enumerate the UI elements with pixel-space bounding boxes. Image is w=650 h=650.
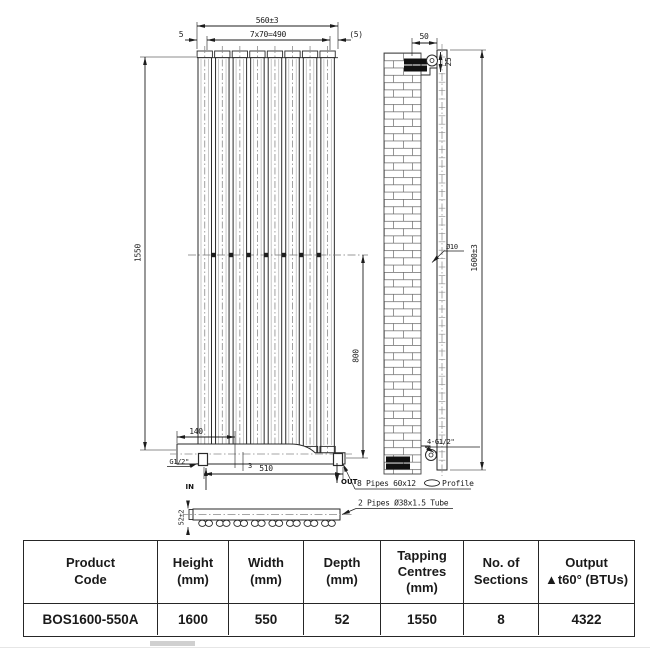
header-height: Height (mm) <box>158 541 229 604</box>
dim-depth: 52±2 <box>178 501 189 534</box>
pipe-oval <box>328 520 335 526</box>
value-tapping-centres: 1550 <box>381 604 464 635</box>
top-bolt-1 <box>404 59 427 65</box>
header-sections: No. of Sections <box>464 541 539 604</box>
dim-overall-height: 1600±3 <box>450 50 486 470</box>
flow-out: OUT <box>337 463 358 486</box>
flow-in: IN <box>186 468 206 491</box>
value-product-code: BOS1600-550A <box>24 604 158 635</box>
flow-out-label: OUT <box>341 478 358 486</box>
bottom-bolt-1 <box>386 457 410 463</box>
wall-section <box>384 53 421 474</box>
bottom-bracket-knob <box>426 450 437 461</box>
top-bolt-2 <box>404 66 427 72</box>
pipe-oval <box>276 520 283 526</box>
gridline-ghost <box>150 641 195 646</box>
dim-depth-label: 52±2 <box>178 510 186 526</box>
pipe-oval <box>240 520 247 526</box>
gridline-ghost <box>0 647 650 648</box>
pipe-oval <box>258 520 265 526</box>
dim-bottom-centres: 510 <box>204 464 343 479</box>
section-nipple <box>282 253 286 257</box>
header-product-code: Product Code <box>24 541 158 604</box>
dim-overall-height-label: 1600±3 <box>470 244 479 272</box>
dim-sections-label: 7x70=490 <box>250 30 287 39</box>
pipe-oval <box>205 520 212 526</box>
dim-overall-width-label: 560±3 <box>256 16 279 25</box>
top-bracket-knob <box>427 55 438 66</box>
plan-ovals <box>199 520 336 526</box>
header-output: Output ▲t60° (BTUs) <box>539 541 634 604</box>
value-output: 4322 <box>539 604 634 635</box>
dim-left-offset-label: 5 <box>179 30 184 39</box>
value-height: 1600 <box>158 604 229 635</box>
value-depth: 52 <box>304 604 381 635</box>
pipe-oval <box>199 520 206 526</box>
dim-top-offset-label: 25 <box>444 57 453 67</box>
header-tapping-centres: Tapping Centres (mm) <box>381 541 464 604</box>
side-view: 50 25 Ø10 1600±3 4-G1/2" <box>384 32 486 476</box>
dim-gap-label: 3 <box>248 462 252 470</box>
pipe-oval <box>322 520 329 526</box>
value-width: 550 <box>229 604 304 635</box>
oval-profile-icon <box>425 480 440 486</box>
connections-callout-label: 4-G1/2" <box>427 438 454 446</box>
outlet-fitting <box>334 454 343 466</box>
section-nipple <box>246 253 250 257</box>
dim-left-offset: 5 <box>179 30 197 40</box>
dim-bracket: 50 <box>412 32 437 56</box>
section-nipple <box>211 253 215 257</box>
inlet-fitting <box>199 454 208 466</box>
value-sections: 8 <box>464 604 539 635</box>
thread-label-text: G1/2" <box>169 458 189 466</box>
dim-sections: 7x70=490 <box>207 30 330 50</box>
dim-bottom-centres-label: 510 <box>259 464 273 473</box>
front-view: 560±3 7x70=490 5 (5) 1550 <box>134 16 369 491</box>
spec-table: Product Code Height (mm) Width (mm) Dept… <box>23 540 635 637</box>
dim-tapping-height-label: 1550 <box>134 243 143 262</box>
section-nipple <box>264 253 268 257</box>
section-nipple <box>229 253 233 257</box>
dim-lower-height-label: 800 <box>352 349 361 363</box>
pipe-oval <box>216 520 223 526</box>
hole-callout-label: Ø10 <box>446 243 458 251</box>
header-width: Width (mm) <box>229 541 304 604</box>
bottom-bolt-2 <box>386 464 410 470</box>
header-depth: Depth (mm) <box>304 541 381 604</box>
section-nipple <box>317 253 321 257</box>
dim-bracket-label: 50 <box>419 32 429 41</box>
note-tube: 2 Pipes Ø38x1.5 Tube <box>342 498 453 515</box>
pipe-oval <box>234 520 241 526</box>
dim-right-offset: (5) <box>338 30 363 40</box>
pipe-oval <box>304 520 311 526</box>
dim-valve-offset-label: 140 <box>189 427 203 436</box>
technical-drawing: 560±3 7x70=490 5 (5) 1550 <box>0 0 650 540</box>
pipe-oval <box>311 520 318 526</box>
pipe-oval <box>251 520 258 526</box>
dim-right-offset-label: (5) <box>349 30 363 39</box>
radiator-technical-drawing-page: 560±3 7x70=490 5 (5) 1550 <box>0 0 650 650</box>
radiator-panels <box>197 46 335 458</box>
note-profile-prefix: 8 Pipes 60x12 <box>357 479 416 488</box>
plan-view: 52±2 8 Pipes 60x12 Profile 2 Pipes Ø38x1… <box>178 464 475 534</box>
pipe-oval <box>286 520 293 526</box>
dim-tapping-height: 1550 <box>134 57 197 450</box>
note-tube-label: 2 Pipes Ø38x1.5 Tube <box>358 498 449 508</box>
pipe-oval <box>223 520 230 526</box>
section-nipple <box>299 253 303 257</box>
pipe-oval <box>293 520 300 526</box>
dim-lower-height: 800 <box>346 255 368 458</box>
note-profile-suffix: Profile <box>442 479 474 488</box>
flow-in-label: IN <box>186 483 195 491</box>
pipe-oval <box>269 520 276 526</box>
